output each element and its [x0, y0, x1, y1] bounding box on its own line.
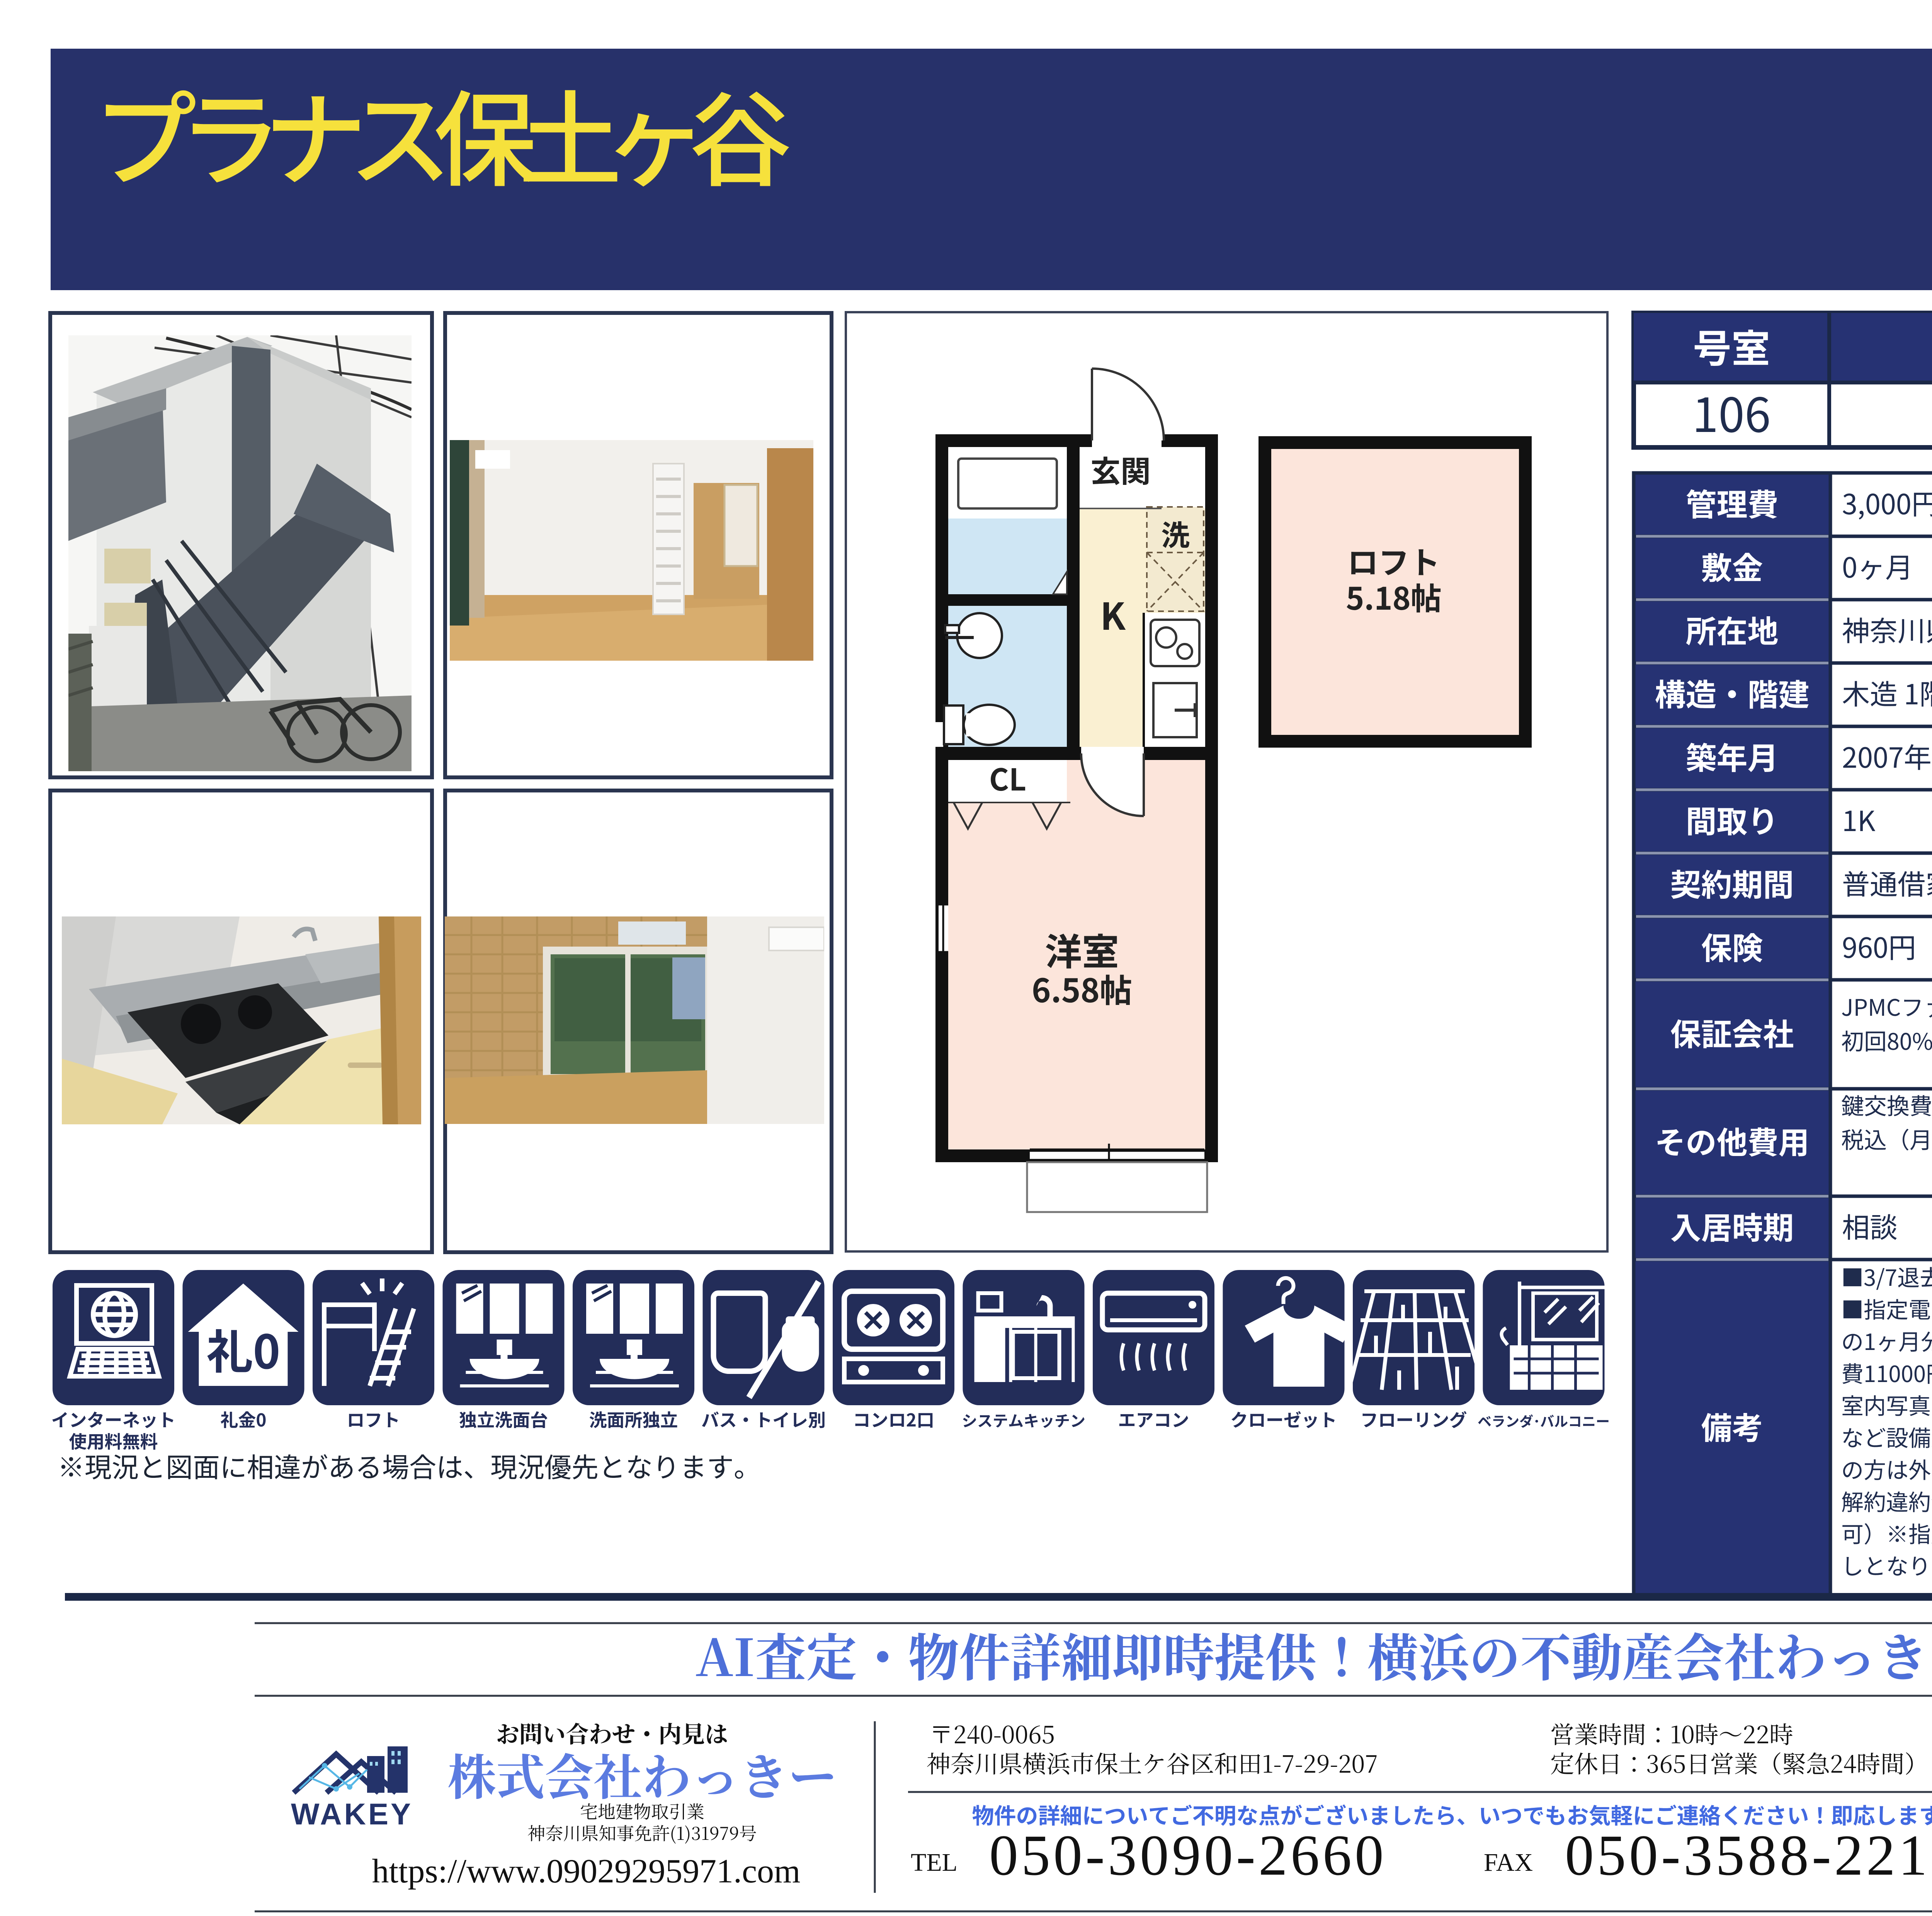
- svg-text:050-3090-2660: 050-3090-2660: [989, 1823, 1387, 1887]
- svg-text:FAX: FAX: [1484, 1848, 1533, 1877]
- svg-text:050-3588-2213: 050-3588-2213: [1565, 1823, 1932, 1887]
- svg-text:TEL: TEL: [911, 1848, 957, 1877]
- svg-text:WAKEY: WAKEY: [291, 1797, 413, 1831]
- svg-text:https://www.09029295971.com: https://www.09029295971.com: [372, 1853, 801, 1890]
